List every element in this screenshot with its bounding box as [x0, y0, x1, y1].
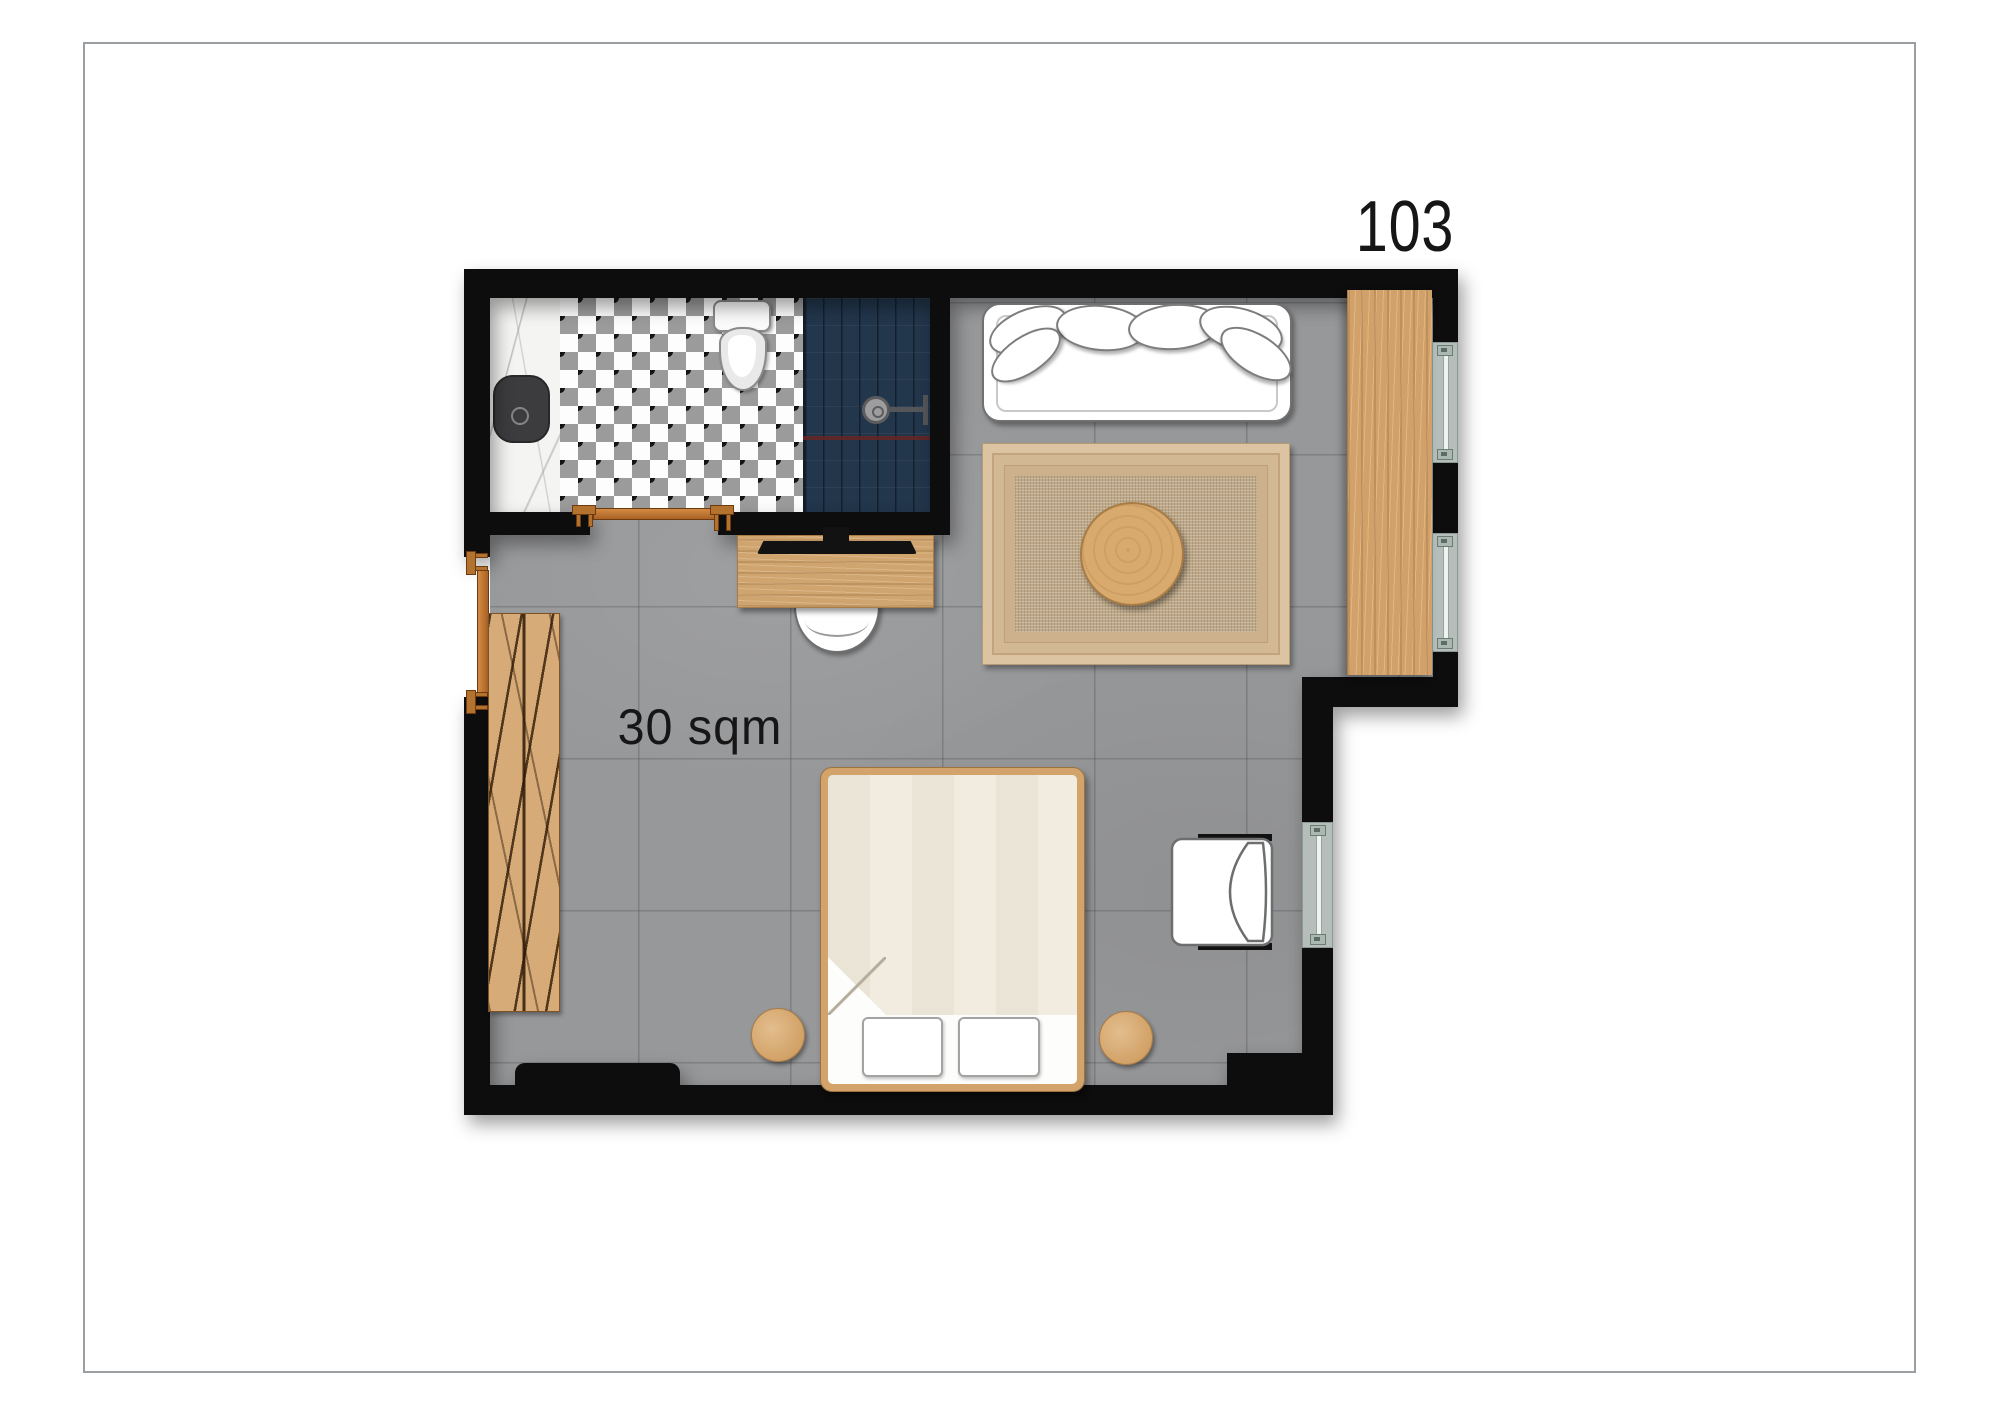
- bathroom-door: [593, 508, 715, 520]
- bed-pillow: [862, 1017, 943, 1077]
- window-latch-icon: [1310, 934, 1326, 945]
- window-upper-right-2: [1432, 533, 1458, 652]
- room-number-label: 103: [1325, 191, 1485, 263]
- wall-left-upper: [464, 269, 490, 557]
- door-jamb-prong: [475, 692, 488, 697]
- door-jamb-prong: [475, 566, 488, 571]
- door-jamb-prong: [576, 514, 581, 527]
- round-coffee-table: [1080, 502, 1184, 606]
- side-stool-right: [1099, 1011, 1153, 1065]
- wall-bottom-pilaster: [515, 1063, 680, 1089]
- door-jamb-prong: [475, 705, 488, 710]
- door-jamb-prong: [588, 514, 593, 527]
- tv: [757, 541, 917, 554]
- window-glass: [1443, 542, 1449, 643]
- door-jamb-prong: [726, 514, 731, 531]
- wall-left-lower: [464, 697, 490, 1115]
- window-latch-icon: [1437, 449, 1453, 460]
- slatted-bench: [488, 613, 560, 1012]
- wall-bathroom-bottom-left: [490, 512, 590, 535]
- wardrobe-panel: [1347, 290, 1432, 675]
- wall-bathroom-right: [930, 298, 950, 535]
- armchair: [1170, 833, 1288, 951]
- window-latch-icon: [1310, 825, 1326, 836]
- side-stool-left: [751, 1008, 805, 1062]
- duvet-fold-corner: [828, 957, 886, 1015]
- window-lower-right: [1302, 822, 1333, 948]
- window-glass: [1316, 831, 1322, 939]
- wall-right-jog: [1302, 677, 1458, 707]
- floor-plan: 103 30 sqm: [0, 0, 1999, 1414]
- window-upper-right-1: [1432, 342, 1458, 463]
- armchair-drawing: [1170, 833, 1288, 951]
- door-jamb-prong: [714, 514, 719, 531]
- window-latch-icon: [1437, 638, 1453, 649]
- tv-stand: [823, 527, 849, 543]
- bed-pillow: [958, 1017, 1040, 1077]
- area-label: 30 sqm: [564, 702, 836, 752]
- floor-plan-page: 103 30 sqm: [0, 0, 1999, 1414]
- walls: [0, 0, 1999, 1414]
- window-latch-icon: [1437, 345, 1453, 356]
- door-jamb-prong: [475, 553, 488, 558]
- wall-top: [464, 269, 1458, 298]
- window-latch-icon: [1437, 536, 1453, 547]
- window-glass: [1443, 351, 1449, 454]
